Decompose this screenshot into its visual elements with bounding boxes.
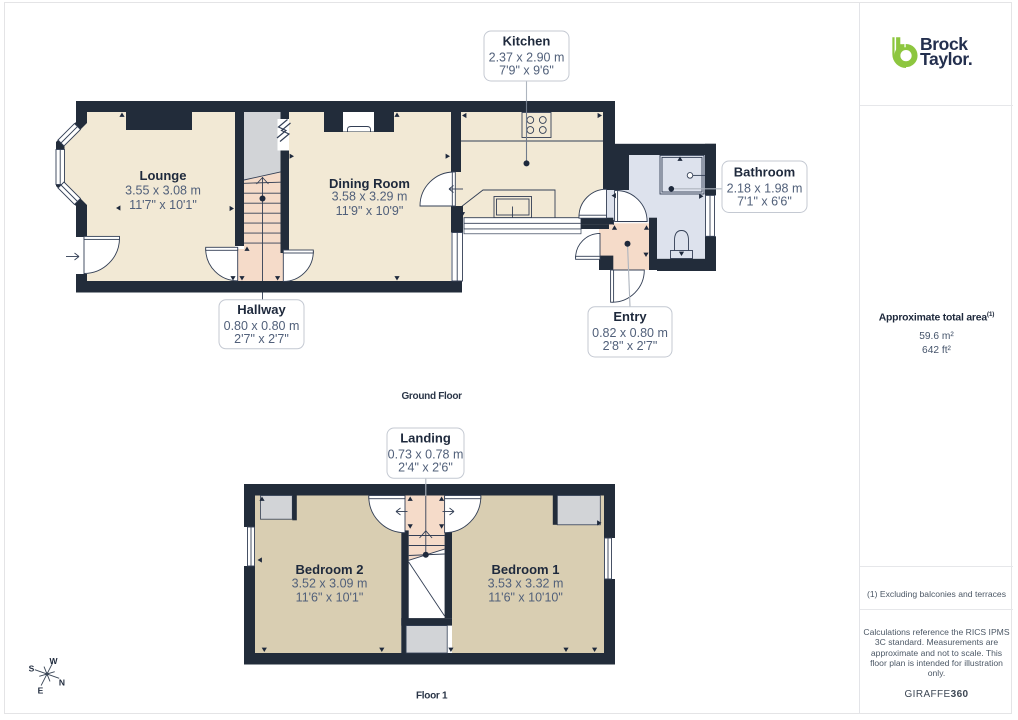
svg-text:Kitchen: Kitchen (503, 34, 551, 49)
svg-text:11'6" x 10'10": 11'6" x 10'10" (488, 591, 563, 605)
svg-text:E: E (38, 686, 44, 696)
svg-text:2.18 x 1.98 m: 2.18 x 1.98 m (727, 181, 803, 195)
svg-text:0.80 x 0.80 m: 0.80 x 0.80 m (224, 319, 300, 333)
svg-text:0.73 x 0.78 m: 0.73 x 0.78 m (388, 447, 464, 461)
svg-text:S: S (29, 664, 35, 674)
svg-text:11'7" x 10'1": 11'7" x 10'1" (129, 198, 197, 212)
svg-text:Bedroom 1: Bedroom 1 (492, 562, 560, 577)
svg-text:Bedroom 2: Bedroom 2 (296, 562, 364, 577)
svg-text:Floor 1: Floor 1 (416, 691, 448, 702)
svg-text:3.53 x 3.32 m: 3.53 x 3.32 m (488, 577, 564, 591)
svg-text:7'1" x 6'6": 7'1" x 6'6" (737, 194, 792, 208)
svg-text:W: W (49, 656, 58, 666)
svg-text:Hallway: Hallway (237, 302, 286, 317)
svg-text:N: N (59, 678, 65, 688)
svg-text:Ground Floor: Ground Floor (401, 391, 462, 402)
svg-text:2'4" x 2'6": 2'4" x 2'6" (398, 460, 453, 474)
svg-text:11'9" x 10'9": 11'9" x 10'9" (336, 204, 404, 218)
svg-text:Landing: Landing (400, 431, 451, 446)
svg-text:7'9" x 9'6": 7'9" x 9'6" (499, 63, 554, 77)
svg-text:2'7" x 2'7": 2'7" x 2'7" (234, 332, 289, 346)
svg-text:11'6" x 10'1": 11'6" x 10'1" (296, 591, 364, 605)
svg-text:Lounge: Lounge (140, 168, 187, 183)
svg-text:Entry: Entry (613, 309, 647, 324)
svg-text:2'8" x 2'7": 2'8" x 2'7" (603, 339, 658, 353)
svg-text:3.55 x 3.08 m: 3.55 x 3.08 m (125, 184, 201, 198)
svg-text:0.82 x 0.80 m: 0.82 x 0.80 m (592, 326, 668, 340)
svg-text:3.52 x 3.09 m: 3.52 x 3.09 m (292, 577, 368, 591)
svg-text:Bathroom: Bathroom (734, 165, 795, 180)
svg-text:2.37 x 2.90 m: 2.37 x 2.90 m (489, 50, 565, 64)
svg-text:3.58 x 3.29 m: 3.58 x 3.29 m (332, 190, 408, 204)
